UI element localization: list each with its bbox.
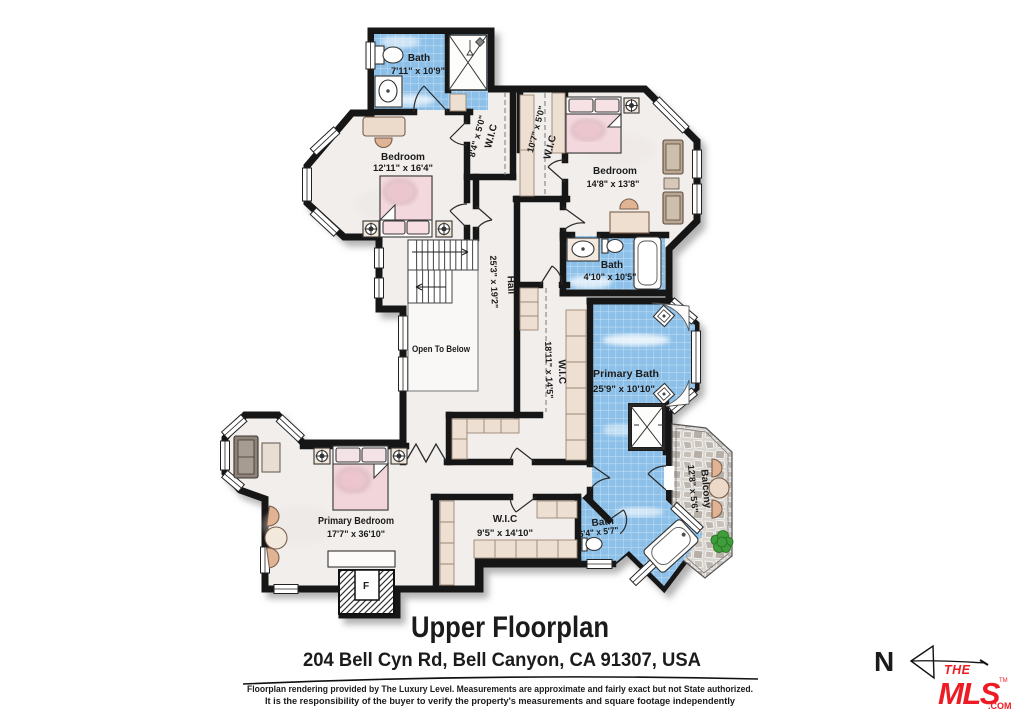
svg-text:Primary Bath: Primary Bath (593, 369, 659, 380)
svg-text:W.I.C: W.I.C (493, 514, 517, 525)
svg-text:Bath: Bath (601, 260, 623, 271)
svg-text:25'9" x 10'10": 25'9" x 10'10" (593, 384, 655, 394)
svg-text:204 Bell Cyn Rd, Bell Canyon,: 204 Bell Cyn Rd, Bell Canyon, CA 91307, … (303, 650, 701, 671)
svg-text:F: F (363, 581, 369, 592)
svg-text:Upper Floorplan: Upper Floorplan (411, 611, 609, 644)
svg-text:9'5" x 14'10": 9'5" x 14'10" (477, 528, 533, 538)
svg-text:Open To Below: Open To Below (412, 344, 471, 354)
svg-text:Bedroom: Bedroom (593, 166, 637, 177)
svg-text:Primary Bedroom: Primary Bedroom (318, 516, 394, 527)
svg-text:25'3" x 19'2": 25'3" x 19'2" (488, 255, 500, 308)
svg-text:Bath: Bath (408, 53, 430, 64)
svg-text:14'8" x 13'8": 14'8" x 13'8" (587, 179, 640, 189)
svg-text:.COM: .COM (988, 701, 1012, 711)
svg-text:7'11" x 10'9": 7'11" x 10'9" (391, 66, 445, 76)
svg-text:4'10" x 10'5": 4'10" x 10'5" (584, 272, 637, 282)
svg-text:TM: TM (999, 678, 1008, 684)
svg-text:W.I.C: W.I.C (556, 360, 568, 385)
svg-text:18'11" x 14'5": 18'11" x 14'5" (543, 341, 555, 399)
svg-text:THE: THE (944, 663, 971, 677)
svg-text:17'7" x 36'10": 17'7" x 36'10" (327, 529, 385, 539)
svg-text:Floorplan rendering provided b: Floorplan rendering provided by The Luxu… (247, 684, 753, 694)
svg-text:12'11" x 16'4": 12'11" x 16'4" (373, 163, 433, 173)
svg-text:Bedroom: Bedroom (381, 152, 425, 163)
svg-text:Hall: Hall (505, 276, 517, 295)
svg-text:It is the responsibility of th: It is the responsibility of the buyer to… (265, 696, 735, 706)
svg-text:N: N (874, 646, 894, 677)
